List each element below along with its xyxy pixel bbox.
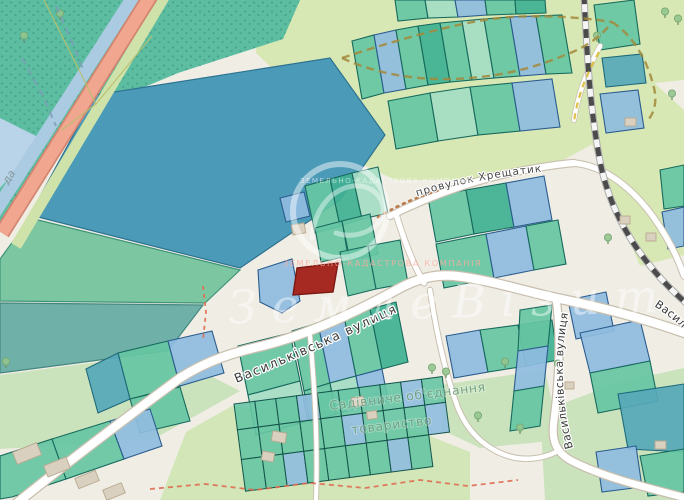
watermark-caps-mid: ЗЕМЕЛЬНО-КАДАСТРОВА КОМПАНІЯ (283, 258, 482, 268)
land-parcel[interactable] (618, 384, 684, 452)
cadastral-map[interactable]: Васильківська вулицяВасильківська вулиця… (0, 0, 684, 500)
land-parcel[interactable] (466, 183, 514, 234)
land-parcel[interactable] (485, 0, 516, 15)
land-parcel[interactable] (512, 79, 560, 131)
land-parcel[interactable] (506, 176, 552, 227)
map-viewport[interactable]: Васильківська вулицяВасильківська вулиця… (0, 0, 684, 500)
land-parcel[interactable] (602, 54, 646, 87)
building-footprint (261, 451, 274, 462)
garden-plot[interactable] (276, 396, 300, 425)
garden-plot[interactable] (408, 435, 433, 469)
land-parcel[interactable] (425, 0, 458, 18)
building-footprint (646, 233, 656, 241)
tree-icon (428, 364, 435, 374)
building-footprint (271, 431, 287, 443)
land-parcel[interactable] (510, 386, 544, 431)
land-parcel[interactable] (455, 0, 487, 17)
building-footprint (655, 441, 666, 449)
land-parcel[interactable] (660, 165, 684, 209)
land-parcel[interactable] (388, 93, 438, 149)
building-footprint (620, 216, 630, 224)
garden-plot[interactable] (234, 401, 258, 430)
tree-icon (604, 234, 611, 244)
garden-plot[interactable] (255, 399, 279, 428)
land-parcel[interactable] (600, 90, 644, 133)
land-parcel[interactable] (395, 0, 428, 21)
land-parcel[interactable] (514, 346, 548, 391)
building-footprint (625, 118, 636, 126)
land-parcel[interactable] (515, 0, 546, 14)
land-parcel[interactable] (470, 83, 520, 135)
land-parcel[interactable] (486, 226, 534, 278)
watermark-caps-top: ЗЕМЕЛЬНО-КАДАСТРОВА КОМПАНІЯ (300, 176, 473, 185)
building-footprint (103, 483, 126, 500)
